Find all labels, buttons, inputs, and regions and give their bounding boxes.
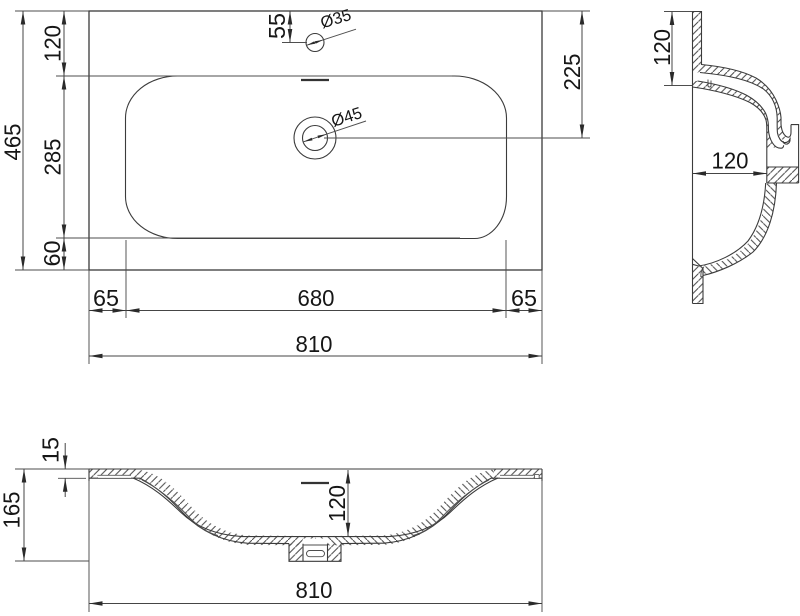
- svg-text:65: 65: [511, 285, 537, 311]
- svg-text:60: 60: [39, 241, 65, 267]
- svg-text:Ø45: Ø45: [329, 104, 364, 131]
- svg-text:165: 165: [0, 492, 25, 529]
- svg-text:15: 15: [38, 437, 64, 463]
- svg-text:120: 120: [324, 485, 350, 522]
- svg-text:120: 120: [712, 148, 749, 174]
- svg-text:680: 680: [298, 285, 335, 311]
- svg-text:225: 225: [559, 54, 585, 91]
- svg-text:65: 65: [93, 285, 119, 311]
- svg-text:120: 120: [40, 25, 66, 62]
- svg-text:810: 810: [296, 331, 333, 357]
- svg-text:Ø35: Ø35: [318, 6, 353, 32]
- svg-text:810: 810: [296, 577, 333, 603]
- svg-text:285: 285: [40, 139, 66, 176]
- svg-text:55: 55: [264, 13, 290, 39]
- svg-text:120: 120: [649, 29, 675, 66]
- svg-text:465: 465: [0, 124, 26, 161]
